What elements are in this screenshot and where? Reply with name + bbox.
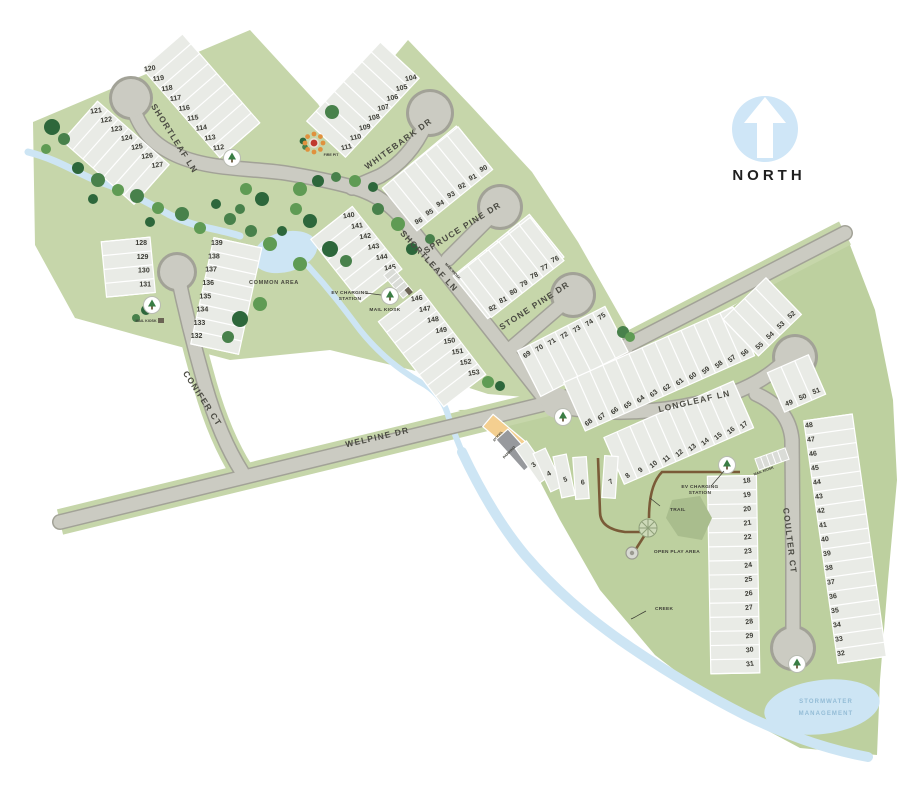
- tree-icon: [482, 376, 494, 388]
- tree-icon: [253, 297, 267, 311]
- tree-icon: [303, 214, 317, 228]
- tree-icon: [112, 184, 124, 196]
- tree-icon: [58, 133, 70, 145]
- lot-27: 27: [745, 604, 754, 612]
- tree-icon: [331, 172, 341, 182]
- tree-icon: [175, 207, 189, 221]
- community-logo-icon: [382, 288, 399, 305]
- tree-icon: [41, 144, 51, 154]
- lot-129: 129: [137, 254, 149, 261]
- tree-icon: [194, 222, 206, 234]
- tree-icon: [349, 175, 361, 187]
- tree-icon: [145, 217, 155, 227]
- lot-39: 39: [823, 550, 832, 558]
- lot-18: 18: [742, 477, 751, 485]
- lot-41: 41: [819, 522, 828, 530]
- tree-icon: [91, 173, 105, 187]
- lot-row-128-131: 128129130131: [101, 237, 155, 297]
- lot-134: 134: [197, 307, 209, 314]
- ev-charging-left-label-2: STATION: [339, 296, 362, 302]
- lot-131: 131: [139, 281, 151, 288]
- tree-icon: [255, 192, 269, 206]
- lot-45: 45: [811, 465, 820, 473]
- stormwater-label-2: MANAGEMENT: [799, 711, 854, 717]
- stormwater-label-1: STORMWATER: [799, 699, 853, 705]
- community-logo-icon: [719, 457, 736, 474]
- lot-29: 29: [745, 632, 754, 640]
- tree-icon: [368, 182, 378, 192]
- ev-charging-right-label-2: STATION: [689, 490, 712, 496]
- lot-130: 130: [138, 268, 150, 275]
- lot-33: 33: [835, 636, 844, 644]
- lot-35: 35: [831, 607, 840, 615]
- mail-kiosk-icon-left: [158, 318, 164, 323]
- community-logo-icon: [144, 297, 161, 314]
- mail-kiosk-left-label: MAIL KIOSK: [135, 319, 157, 323]
- lot-43: 43: [815, 493, 824, 501]
- lot-row-18-31: 1819202122232425262728293031: [707, 476, 759, 674]
- lot-47: 47: [807, 436, 816, 444]
- tree-icon: [232, 311, 248, 327]
- lot-32: 32: [837, 650, 846, 658]
- lot-cell-6: 6: [573, 457, 589, 500]
- lot-cell-7: 7: [602, 456, 618, 499]
- tree-icon: [325, 105, 339, 119]
- trail-label: TRAIL: [670, 507, 686, 513]
- lot-46: 46: [809, 450, 818, 458]
- lot-28: 28: [745, 618, 754, 626]
- tree-icon: [293, 182, 307, 196]
- lot-22: 22: [743, 534, 752, 542]
- lot-21: 21: [743, 520, 752, 528]
- tree-icon: [224, 213, 236, 225]
- tree-icon: [372, 203, 384, 215]
- lot-128: 128: [135, 240, 147, 247]
- lot-30: 30: [745, 646, 754, 654]
- tree-icon: [235, 204, 245, 214]
- tree-icon: [263, 237, 277, 251]
- lot-20: 20: [743, 505, 752, 513]
- lot-42: 42: [817, 507, 826, 515]
- ev-charging-left-label-1: EV CHARGING: [331, 290, 368, 296]
- tree-icon: [72, 162, 84, 174]
- tree-icon: [340, 255, 352, 267]
- community-logo-icon: [789, 656, 806, 673]
- open-play-area-label: OPEN PLAY AREA: [654, 549, 700, 555]
- tree-icon: [44, 119, 60, 135]
- tree-icon: [495, 381, 505, 391]
- ev-charging-right-label-1: EV CHARGING: [681, 484, 718, 490]
- community-logo-icon: [555, 409, 572, 426]
- tree-icon: [88, 194, 98, 204]
- lot-31: 31: [746, 661, 755, 669]
- tree-icon: [322, 241, 338, 257]
- lot-23: 23: [744, 548, 753, 556]
- tree-icon: [152, 202, 164, 214]
- mail-kiosk-center-label: MAIL KIOSK: [369, 307, 400, 313]
- creek-label: CREEK: [655, 606, 674, 612]
- lot-133: 133: [194, 320, 206, 327]
- tree-icon: [130, 189, 144, 203]
- lot-132: 132: [191, 333, 203, 340]
- tree-icon: [391, 217, 405, 231]
- tree-icon: [211, 199, 221, 209]
- site-plan-map: 1201191181171161151141131121211221231241…: [0, 0, 906, 792]
- north-arrow: NORTH: [732, 96, 806, 184]
- lot-40: 40: [821, 536, 830, 544]
- tree-icon: [277, 226, 287, 236]
- lot-136: 136: [202, 280, 214, 287]
- lot-48: 48: [805, 422, 814, 430]
- lot-24: 24: [744, 562, 753, 570]
- site-plan-page: 1201191181171161151141131121211221231241…: [0, 0, 906, 792]
- lot-135: 135: [199, 293, 211, 300]
- lot-37: 37: [827, 579, 836, 587]
- lot-137: 137: [205, 267, 217, 274]
- culdesac-conifer: [160, 255, 194, 289]
- lot-38: 38: [825, 564, 834, 572]
- lot-25: 25: [744, 576, 753, 584]
- tree-icon: [290, 203, 302, 215]
- lot-34: 34: [833, 621, 842, 629]
- lot-36: 36: [829, 593, 838, 601]
- lot-139: 139: [211, 240, 223, 247]
- community-logo-icon: [224, 150, 241, 167]
- culdesac-shortleaf: [112, 79, 150, 117]
- lot-19: 19: [743, 491, 752, 499]
- common-area-label: COMMON AREA: [249, 280, 299, 286]
- tree-icon: [240, 183, 252, 195]
- lot-44: 44: [813, 479, 822, 487]
- tree-icon: [222, 331, 234, 343]
- fire-pit-label: FIRE PIT: [324, 153, 340, 157]
- tree-icon: [245, 225, 257, 237]
- tree-icon: [312, 175, 324, 187]
- tree-icon: [293, 257, 307, 271]
- tree-icon: [625, 332, 635, 342]
- lot-26: 26: [744, 590, 753, 598]
- north-label: NORTH: [732, 167, 805, 184]
- lot-138: 138: [208, 253, 220, 260]
